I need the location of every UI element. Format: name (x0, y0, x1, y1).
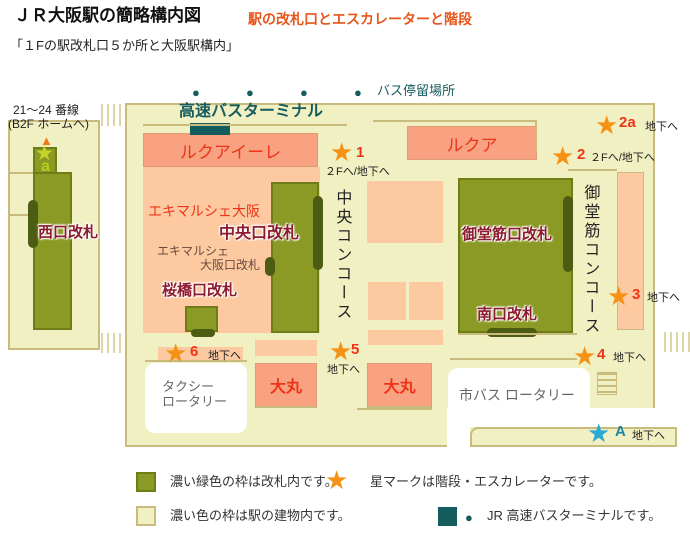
ekimarche-gate-label-2: 大阪口改札 (200, 259, 260, 273)
platform-wall-line (10, 172, 33, 174)
bus-stop-dot-icon: ● (354, 86, 362, 99)
star-4-destination: 地下へ (613, 349, 646, 365)
city-bus-rotary-label: 市バス ロータリー (459, 387, 575, 403)
star-A-letter: A (615, 423, 626, 440)
legend-teal-swatch (438, 507, 457, 526)
star-2a-icon: ★ (595, 112, 618, 138)
platform-label-1: 21～24 番線 (13, 104, 79, 118)
bus-stop-dot-icon: ● (300, 86, 308, 99)
central-gate-label: 中央口改札 (219, 225, 299, 243)
crosswalk-icon (664, 332, 690, 352)
taxi-rotary-label: タクシー ロータリー (162, 380, 227, 410)
star-4-icon: ★ (573, 343, 596, 369)
star-A-icon: ★ (587, 420, 610, 446)
west-gate-label: 西口改札 (38, 224, 98, 241)
concourse-shop-block (368, 282, 406, 320)
central-gate-area (271, 182, 319, 333)
page-title: ＪＲ大阪駅の簡略構内図 (14, 6, 201, 26)
wall-line (535, 120, 537, 152)
star-1-destination: ２Fへ/地下へ (325, 163, 390, 179)
star-5-number: 5 (351, 341, 359, 358)
star-5-destination: 地下へ (327, 361, 360, 377)
star-6-number: 6 (190, 343, 198, 360)
ekimarche-gate-label-1: エキマルシェ (157, 245, 229, 259)
concourse-shop-block (368, 330, 443, 345)
gate-pill (28, 200, 38, 248)
legend-cream-swatch (136, 506, 156, 526)
lucua-ile-label: ルクアイーレ (180, 138, 281, 163)
stairs-icon (597, 372, 617, 395)
daimaru-label: 大丸 (270, 373, 302, 397)
legend-star-icon: ★ (325, 467, 348, 493)
legend-star-meaning-text: 星マークは階段・エスカレーターです。 (370, 475, 602, 490)
wall-line (357, 408, 432, 410)
star-2a-destination: 地下へ (645, 118, 678, 134)
star-3-number: 3 (632, 286, 640, 303)
star-4-number: 4 (597, 346, 605, 363)
wall-line (373, 120, 537, 122)
star-2-number: 2 (577, 146, 585, 163)
legend-building-inside-text: 濃い色の枠は駅の建物内です。 (170, 509, 351, 524)
bus-terminal-label: 高速バスターミナル (179, 103, 323, 121)
star-1-number: 1 (356, 144, 364, 161)
star-3-icon: ★ (607, 283, 630, 309)
legend-green-swatch (136, 472, 156, 492)
central-concourse-label: 中央コンコース (332, 189, 350, 322)
wall-line (450, 358, 577, 360)
bus-stop-dot-icon: ● (192, 86, 200, 99)
concourse-shop-block (409, 282, 443, 320)
west-gate-area (33, 172, 72, 330)
star-1-icon: ★ (330, 139, 353, 165)
taxi-rotary-label-line2: ロータリー (162, 395, 227, 410)
daimaru-right-block: 大丸 (367, 363, 432, 408)
star-6-icon: ★ (164, 340, 187, 366)
gate-pill (265, 257, 275, 276)
daimaru-left-block: 大丸 (255, 363, 317, 408)
bus-stop-dot-icon: ● (246, 86, 254, 99)
crosswalk-icon (101, 104, 125, 126)
page-caption: 「１Fの駅改札口５か所と大阪駅構内」 (10, 39, 239, 54)
legend-bus-terminal-text: JR 高速バスターミナルです。 (487, 509, 661, 524)
sakurabashi-gate-label: 桜橋口改札 (162, 282, 237, 299)
bus-stop-label: バス停留場所 (377, 84, 455, 99)
star-2-destination: ２Fへ/地下へ (590, 149, 655, 165)
midosuji-concourse-label: 御堂筋コンコース (580, 184, 598, 336)
taxi-rotary-label-line1: タクシー (162, 380, 227, 395)
gate-pill (191, 329, 215, 337)
wall-line (458, 333, 577, 335)
star-2-icon: ★ (551, 143, 574, 169)
crosswalk-icon (101, 333, 125, 353)
legend-gate-inside-text: 濃い緑色の枠は改札内です。 (170, 475, 338, 490)
lucua-label: ルクア (447, 131, 498, 156)
platform-label-2: (B2F ホームへ) (8, 118, 89, 132)
south-gate-label: 南口改札 (477, 306, 537, 323)
star-a-letter: a (41, 158, 50, 176)
ekimarche-label: エキマルシェ大阪 (148, 203, 260, 219)
star-3-destination: 地下へ (647, 289, 680, 305)
lucua-block: ルクア (407, 126, 537, 160)
wall-line (143, 124, 347, 126)
page-subtitle: 駅の改札口とエスカレーターと階段 (248, 11, 472, 27)
lucua-ile-block: ルクアイーレ (143, 133, 318, 167)
concourse-shop-block (255, 340, 317, 356)
daimaru-label: 大丸 (383, 373, 415, 397)
gate-pill (563, 196, 573, 272)
wall-line (568, 169, 617, 171)
gate-pill (313, 196, 323, 270)
concourse-shop-block (367, 181, 443, 243)
star-2a-number: 2a (619, 114, 636, 131)
star-6-destination: 地下へ (208, 347, 241, 363)
legend-dot-icon: ● (465, 511, 473, 524)
midosuji-gate-label: 御堂筋口改札 (462, 226, 552, 243)
star-A-destination: 地下へ (632, 427, 665, 443)
